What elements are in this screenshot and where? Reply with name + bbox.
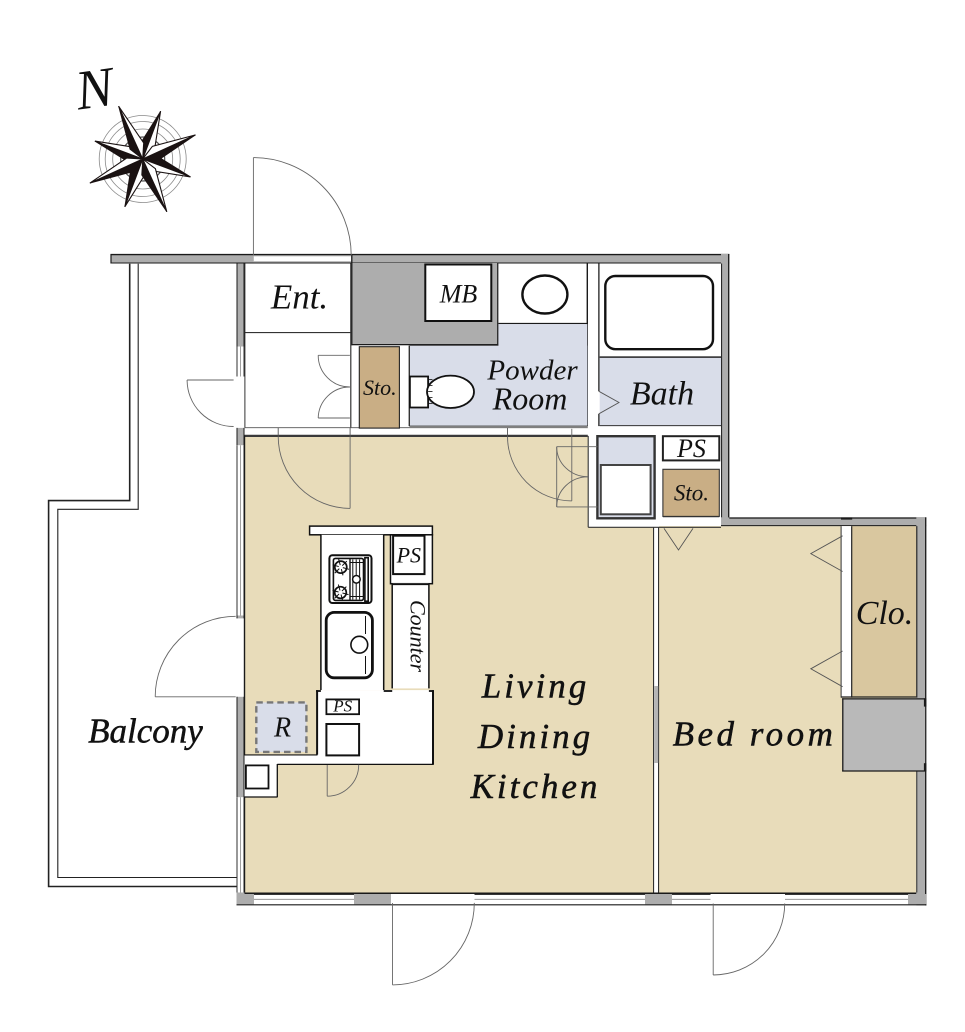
svg-text:Sto.: Sto.	[674, 481, 709, 506]
svg-text:PS: PS	[396, 543, 421, 568]
svg-text:Bed room: Bed room	[673, 715, 837, 754]
svg-text:R: R	[273, 713, 291, 744]
svg-text:PS: PS	[676, 434, 706, 463]
svg-text:Sto.: Sto.	[363, 375, 397, 400]
svg-text:Living: Living	[481, 667, 589, 706]
svg-text:Room: Room	[492, 381, 568, 417]
svg-text:Kitchen: Kitchen	[470, 767, 601, 806]
svg-text:MB: MB	[439, 280, 478, 309]
svg-text:Counter: Counter	[406, 600, 431, 673]
svg-text:Dining: Dining	[477, 717, 593, 756]
svg-text:Bath: Bath	[630, 376, 694, 413]
svg-text:Clo.: Clo.	[856, 595, 914, 632]
svg-text:Ent.: Ent.	[270, 278, 328, 317]
svg-text:Balcony: Balcony	[88, 711, 203, 750]
svg-text:PS: PS	[332, 697, 352, 716]
